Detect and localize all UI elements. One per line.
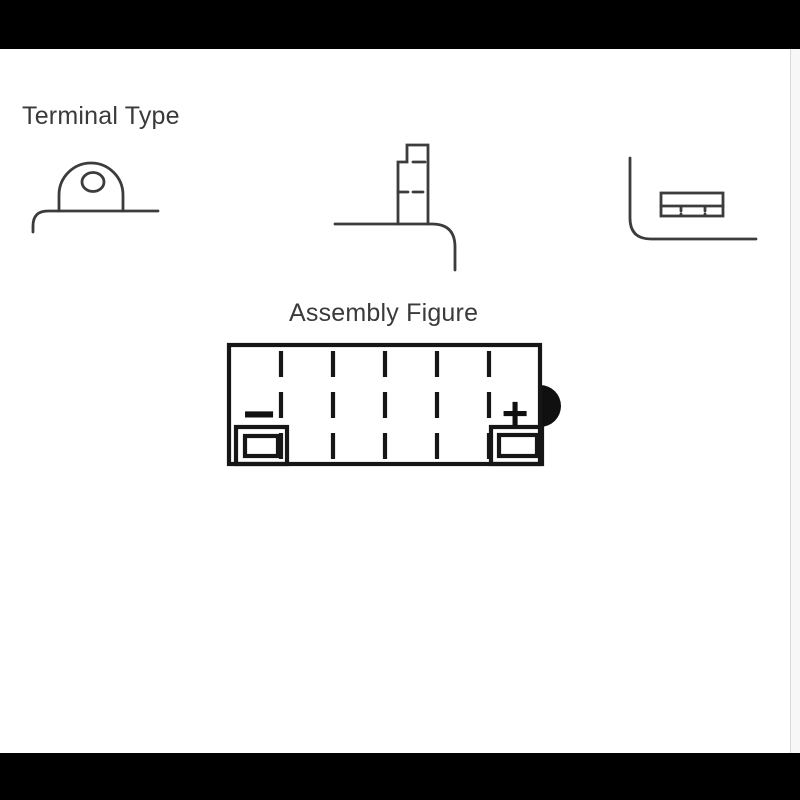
terminal-type-heading: Terminal Type bbox=[22, 101, 180, 131]
positive-polarity-mark: + bbox=[493, 393, 537, 433]
terminal-post-icon bbox=[330, 142, 460, 272]
negative-polarity-mark: − bbox=[228, 393, 290, 433]
terminal-flat-block-icon bbox=[625, 155, 760, 245]
content-area: Terminal Type bbox=[0, 49, 790, 753]
top-letterbox-bar bbox=[0, 0, 800, 49]
bottom-letterbox-bar bbox=[0, 753, 800, 800]
right-border bbox=[790, 49, 800, 753]
assembly-figure-heading: Assembly Figure bbox=[289, 298, 478, 328]
page: Terminal Type bbox=[0, 0, 800, 800]
side-knob-shape bbox=[540, 385, 561, 427]
terminal-round-tab-icon bbox=[25, 158, 165, 238]
